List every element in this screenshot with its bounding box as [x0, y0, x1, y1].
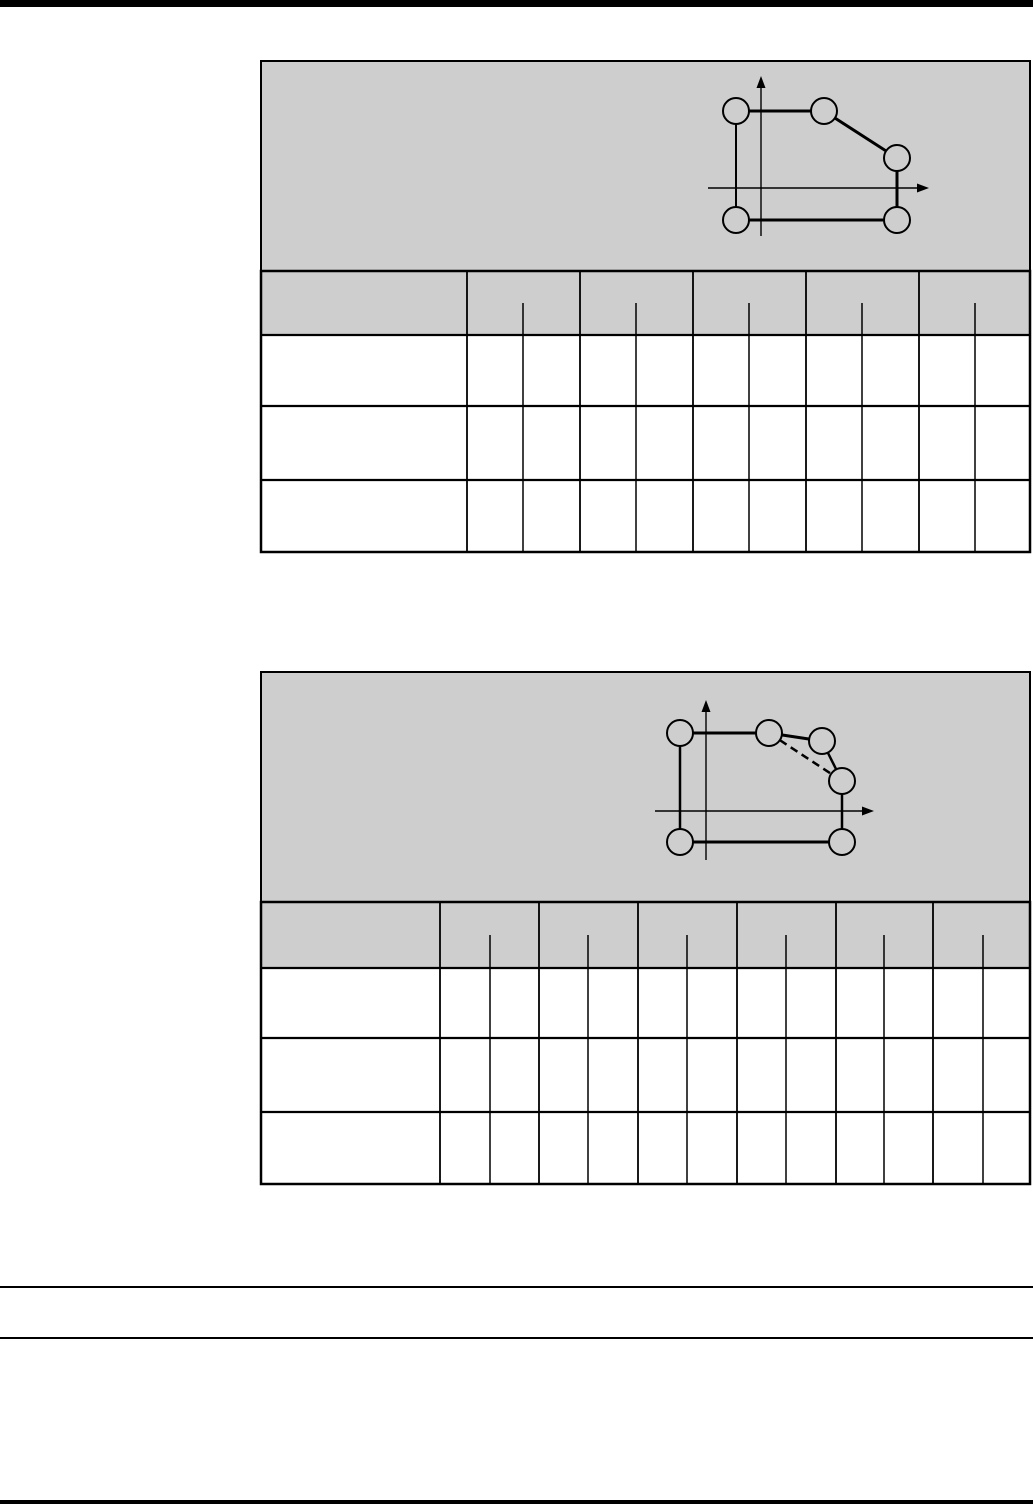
contour-point: [811, 98, 837, 124]
contour-point: [809, 728, 835, 754]
contour-point: [829, 768, 855, 794]
contour-point: [884, 207, 910, 233]
horizontal-rule: [0, 0, 1033, 7]
contour-point: [667, 829, 693, 855]
contour-point: [829, 829, 855, 855]
page-canvas: [0, 0, 1033, 1506]
contour-point: [884, 145, 910, 171]
horizontal-rule: [0, 1286, 1033, 1288]
table-header: [261, 902, 1030, 968]
horizontal-rule: [0, 1337, 1033, 1339]
figure-box: [261, 672, 1030, 902]
contour-point: [667, 720, 693, 746]
figure-box: [261, 61, 1030, 271]
contour-point: [723, 98, 749, 124]
table-header: [261, 271, 1030, 335]
contour-point: [723, 207, 749, 233]
horizontal-rule: [0, 1500, 1033, 1504]
contour-point: [756, 720, 782, 746]
document-page: [0, 0, 1033, 1506]
